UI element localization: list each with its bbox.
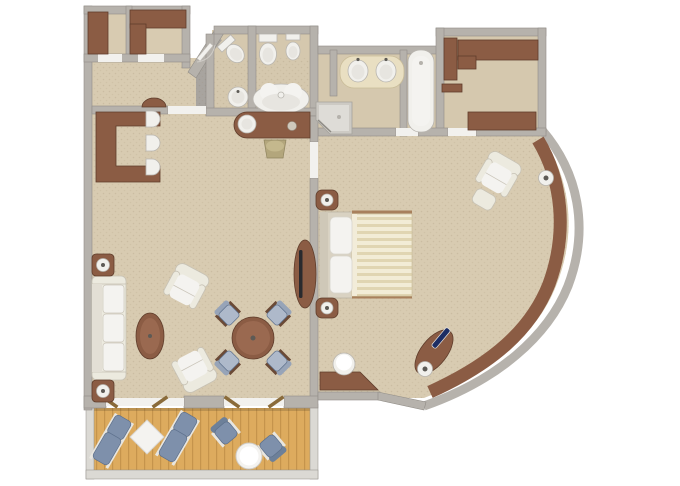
oval-coffee-table [136,313,164,359]
duvet-fold [352,214,357,296]
desk-chair [146,159,160,175]
double-sink-vanity [340,56,404,88]
railing-left [86,408,94,479]
shower-drain [337,115,341,119]
tv-screen [299,250,303,298]
desk-chair [146,135,160,151]
bed-rail [352,211,412,214]
tub-closet-divider [436,28,444,132]
bedroom-bottom-wall [318,392,380,400]
closet-cabinet-step [458,56,476,69]
bathtub [408,50,434,132]
vanity-accessory [288,122,297,131]
outer-wall-left [84,6,92,410]
vanity-table [234,112,310,138]
closet-top-wall [436,28,546,36]
closet-shelf [442,84,462,92]
closet-right-wall [538,28,546,132]
round-stool [333,353,355,375]
closet-cabinet-tall [444,38,457,80]
vanity-stool [264,140,286,158]
floor-plan-svg [0,0,680,486]
sofa-back [92,284,102,372]
sofa-cushion [103,285,124,313]
sofa [92,276,126,380]
bidet [286,34,300,60]
end-table-with-lamp [92,380,114,402]
hall-living-doorway [168,106,206,114]
wc-basin-faucet [237,90,240,93]
tv-console [294,240,316,308]
balcony [86,404,318,479]
wardrobe [88,12,108,54]
sofa-cushion [103,343,124,371]
railing-right [310,404,318,479]
l-wardrobe-side [130,24,146,54]
vanity-west-stub-wall [330,50,337,96]
bedroom-doorway [310,142,318,178]
faucet [384,58,387,61]
nightstand-with-lamp [316,190,338,210]
railing-bottom [86,470,318,479]
sofa-cushion [103,314,124,342]
pillow [330,256,352,293]
balcony-door-sill-left [106,398,184,406]
striped-duvet [352,214,412,296]
tub-drain [419,61,423,65]
nightstand-with-lamp [316,298,338,318]
closet-doorway-a [98,54,122,62]
living-bottom-wall-c [284,396,318,408]
living-bottom-wall-b [184,396,224,408]
faucet [356,58,359,61]
desk-chair [146,111,160,127]
deck-shadow [94,408,312,411]
bath-top-wall [214,26,318,34]
vanity-mirror-glass [242,119,253,130]
end-table-with-lamp [92,254,114,276]
closet-doorway-b [138,54,164,62]
toilet [259,34,277,65]
round-table-top [240,447,259,466]
pillow [330,217,352,254]
whirlpool-tub [253,83,309,114]
headboard [320,212,328,298]
double-bed [320,211,412,299]
floor-plan [0,0,680,486]
stool-cushion [266,141,284,152]
closet-cabinet-bottom [468,112,536,130]
